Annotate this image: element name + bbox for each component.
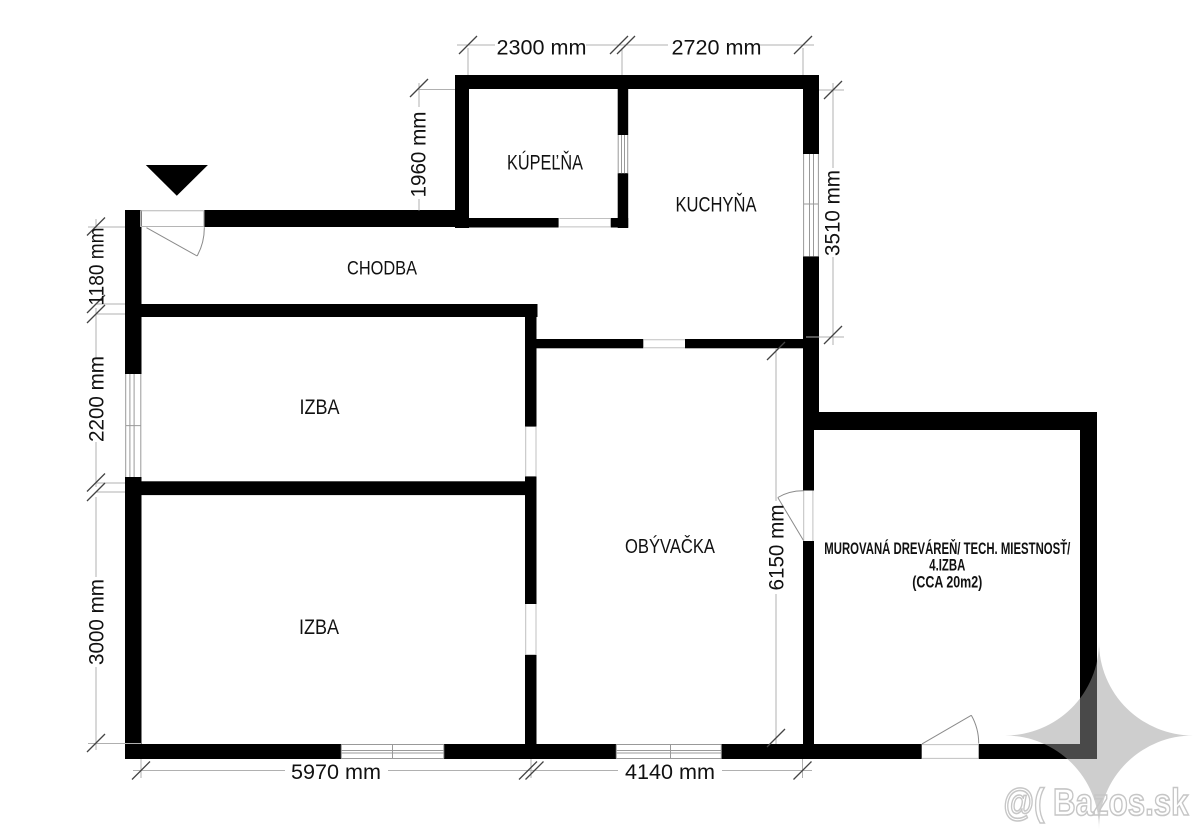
- svg-text:2720 mm: 2720 mm: [672, 37, 762, 60]
- svg-text:4.IZBA: 4.IZBA: [929, 557, 965, 575]
- svg-text:OBÝVAČKA: OBÝVAČKA: [625, 535, 715, 558]
- svg-text:CHODBA: CHODBA: [347, 258, 417, 279]
- svg-text:1960 mm: 1960 mm: [408, 112, 431, 198]
- svg-text:MUROVANÁ DREVÁREŇ/ TECH. MIEST: MUROVANÁ DREVÁREŇ/ TECH. MIESTNOSŤ/: [824, 539, 1070, 558]
- svg-text:2200 mm: 2200 mm: [86, 356, 109, 442]
- svg-text:IZBA: IZBA: [299, 615, 340, 639]
- svg-text:2300 mm: 2300 mm: [497, 37, 587, 60]
- svg-text:1180 mm: 1180 mm: [86, 228, 109, 306]
- svg-text:IZBA: IZBA: [300, 395, 341, 419]
- svg-text:4140 mm: 4140 mm: [625, 761, 715, 784]
- svg-text:3510 mm: 3510 mm: [822, 170, 845, 256]
- svg-text:6150 mm: 6150 mm: [766, 505, 789, 591]
- svg-text:3000 mm: 3000 mm: [86, 579, 109, 665]
- svg-text:KUCHYŇA: KUCHYŇA: [676, 194, 757, 217]
- svg-text:KÚPEĽŇA: KÚPEĽŇA: [507, 152, 583, 175]
- svg-text:5970 mm: 5970 mm: [291, 761, 381, 784]
- svg-text:(CCA 20m2): (CCA 20m2): [912, 574, 982, 592]
- svg-text:@( Bazos.sk: @( Bazos.sk: [1004, 782, 1190, 824]
